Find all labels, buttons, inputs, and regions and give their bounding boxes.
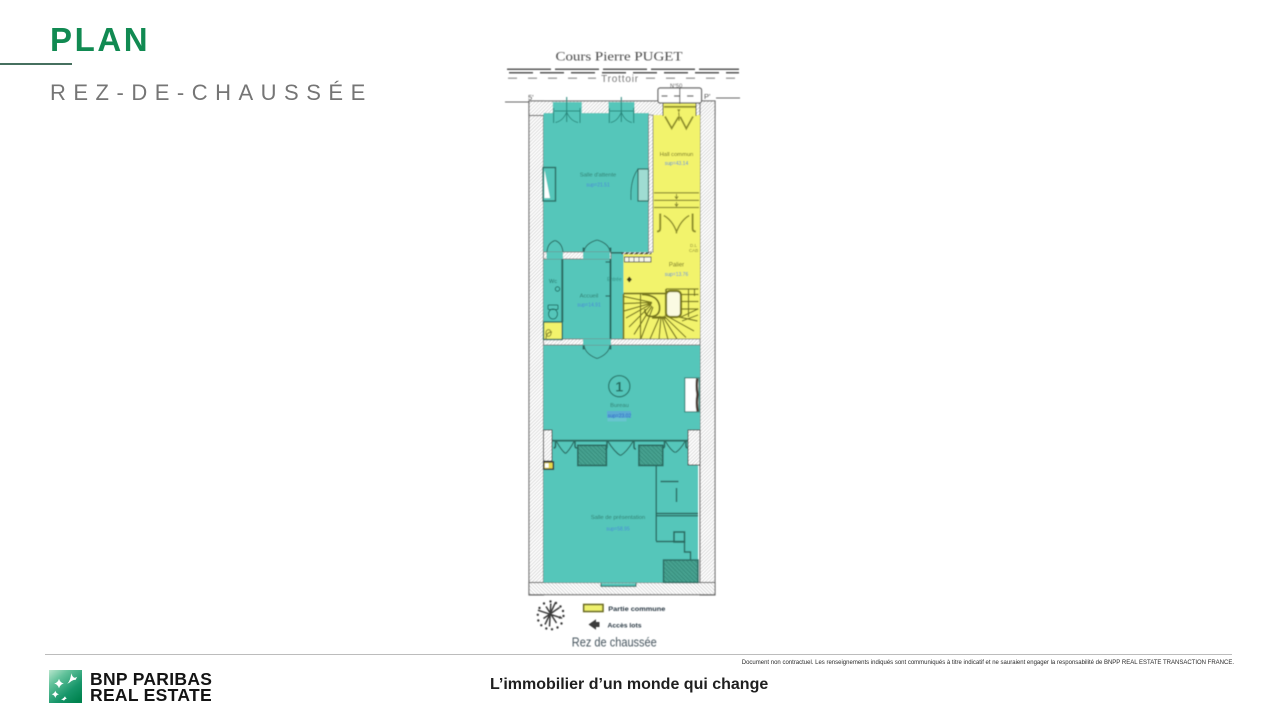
svg-text:Accueil: Accueil xyxy=(580,294,599,300)
svg-text:sup=21.51: sup=21.51 xyxy=(586,183,610,189)
svg-text:Cours Pierre PUGET: Cours Pierre PUGET xyxy=(556,49,683,64)
svg-text:CAB: CAB xyxy=(689,248,698,253)
svg-text:Wc: Wc xyxy=(549,279,557,285)
svg-text:1: 1 xyxy=(615,379,623,395)
svg-text:P': P' xyxy=(704,92,711,101)
svg-text:Salle d'attente: Salle d'attente xyxy=(580,173,617,179)
svg-text:sup=13.76: sup=13.76 xyxy=(665,272,689,278)
svg-text:Accès lots: Accès lots xyxy=(608,623,642,630)
svg-text:sup=58.95: sup=58.95 xyxy=(606,527,630,533)
svg-text:sup=14.91: sup=14.91 xyxy=(577,303,601,309)
svg-text:Bureau: Bureau xyxy=(610,403,629,409)
svg-text:Salle de présentation: Salle de présentation xyxy=(591,515,645,521)
svg-text:Rez de chaussée: Rez de chaussée xyxy=(572,634,657,649)
svg-text:sup=43.14: sup=43.14 xyxy=(665,161,689,167)
svg-text:N°50: N°50 xyxy=(670,84,682,90)
svg-text:Entrée: Entrée xyxy=(607,277,622,283)
svg-text:Hall commun: Hall commun xyxy=(660,152,694,158)
svg-text:sup=23.02: sup=23.02 xyxy=(608,414,632,420)
svg-text:Partie commune: Partie commune xyxy=(608,606,665,613)
svg-text:Palier: Palier xyxy=(669,263,684,269)
svg-text:Trottoir: Trottoir xyxy=(601,74,639,85)
